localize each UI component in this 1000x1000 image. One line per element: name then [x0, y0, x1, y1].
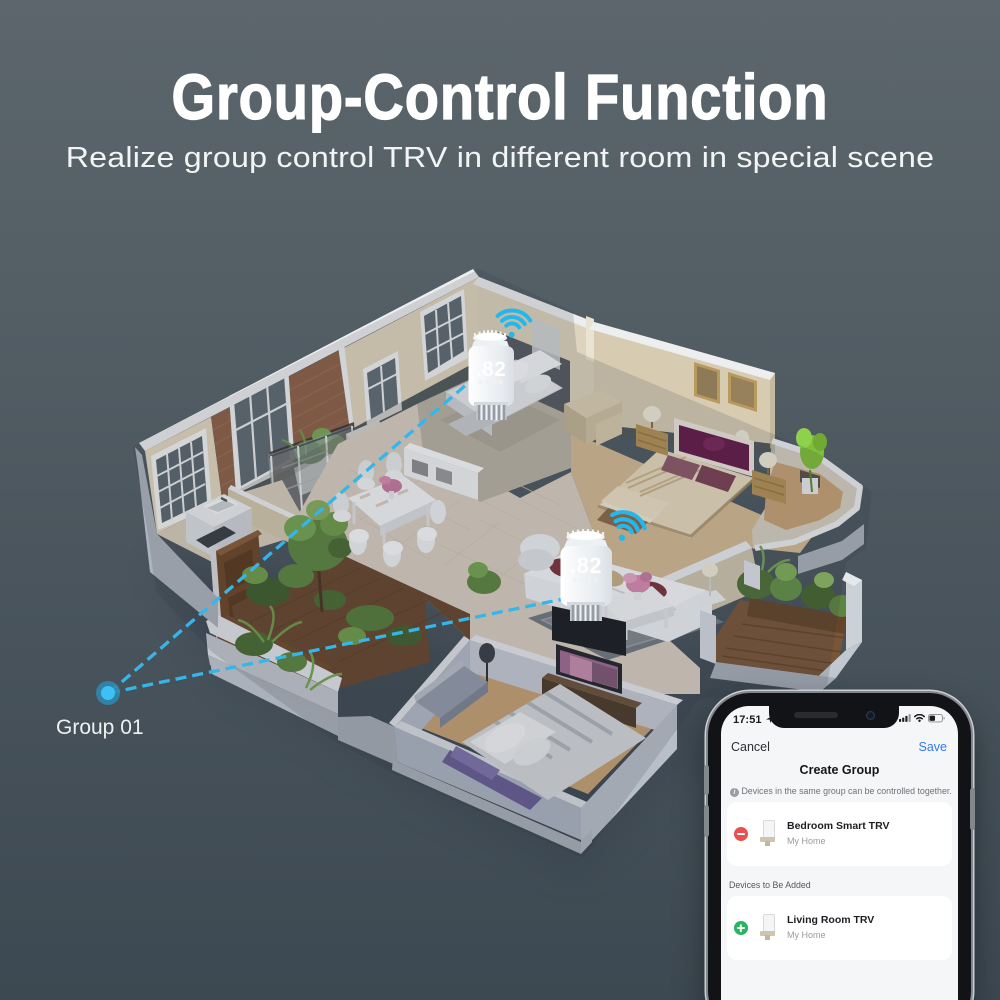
svg-text:.82: .82 — [476, 358, 507, 381]
svg-text:.82: .82 — [570, 553, 602, 578]
